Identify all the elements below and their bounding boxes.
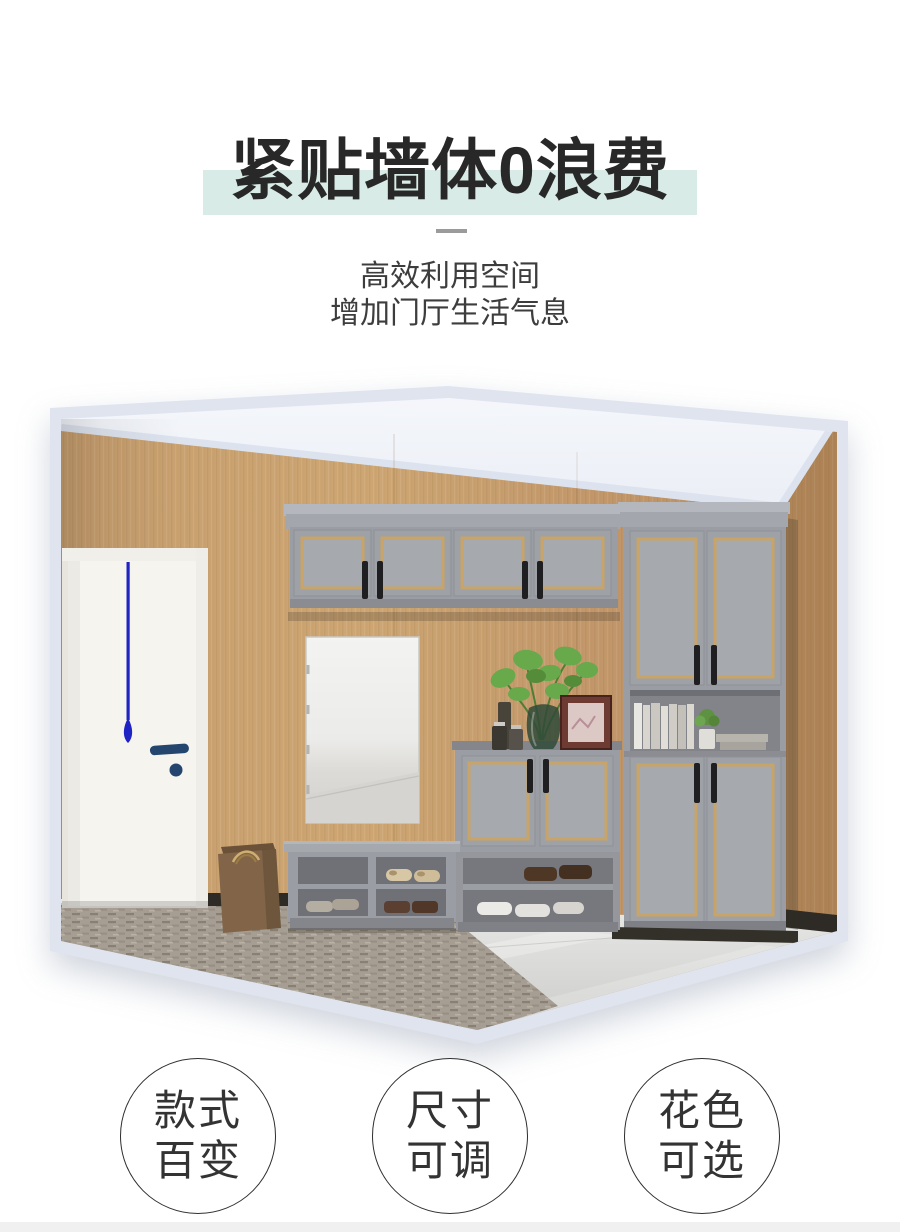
wall-mirror bbox=[306, 637, 419, 823]
hanging-string bbox=[127, 562, 130, 720]
subtitle-block: 高效利用空间 增加门厅生活气息 bbox=[0, 258, 900, 332]
photo-frame-decor bbox=[561, 696, 611, 749]
tall-cabinet-unit bbox=[612, 502, 798, 943]
open-shelf-niche bbox=[630, 690, 780, 751]
feature-badge-size: 尺寸 可调 bbox=[372, 1058, 528, 1214]
subtitle-line1: 高效利用空间 bbox=[0, 258, 900, 295]
page-title: 紧贴墙体0浪费 bbox=[0, 137, 900, 203]
entry-door bbox=[62, 548, 208, 908]
title-divider bbox=[436, 229, 467, 233]
subtitle-line2: 增加门厅生活气息 bbox=[0, 295, 900, 332]
feature-badge-line: 可选 bbox=[658, 1136, 746, 1186]
shoe-shelves bbox=[456, 852, 620, 932]
feature-badge-style: 款式 百变 bbox=[120, 1058, 276, 1214]
middle-cabinet bbox=[452, 741, 622, 852]
upper-wall-cabinets bbox=[284, 504, 622, 621]
feature-badge-line: 花色 bbox=[658, 1086, 746, 1136]
footer-bar bbox=[0, 1222, 900, 1232]
product-photo bbox=[0, 380, 900, 1060]
feature-badge-color: 花色 可选 bbox=[624, 1058, 780, 1214]
feature-badge-line: 款式 bbox=[154, 1086, 242, 1136]
entryway-room-illustration bbox=[0, 380, 900, 1060]
feature-badge-line: 百变 bbox=[154, 1136, 242, 1186]
photo-frame bbox=[0, 380, 900, 1060]
shoe-bench bbox=[284, 841, 460, 933]
feature-badge-line: 可调 bbox=[406, 1136, 494, 1186]
paper-bag bbox=[218, 843, 281, 933]
feature-badge-line: 尺寸 bbox=[406, 1086, 494, 1136]
